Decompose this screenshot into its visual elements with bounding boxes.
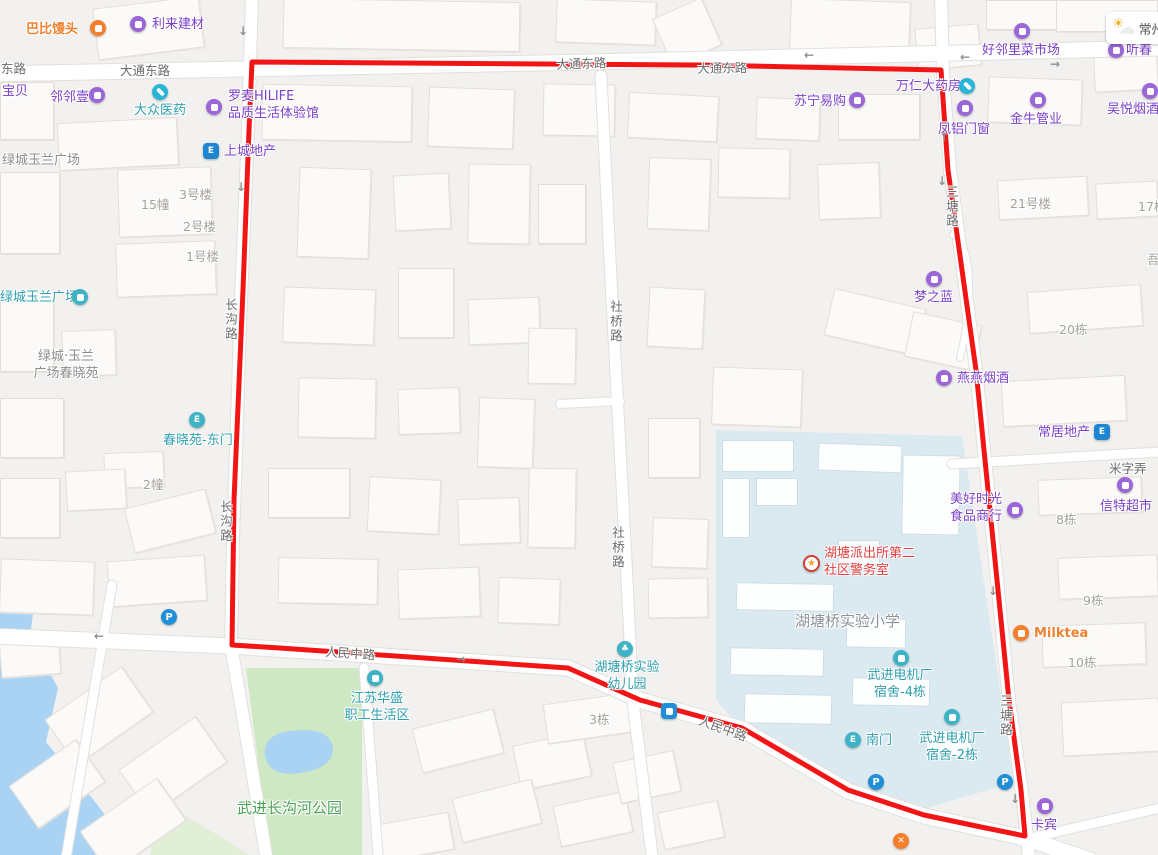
poi-label: 美好时光 食品商行 [950,492,1002,526]
poi-label: 绿城玉兰广场 [0,290,78,307]
poi-label: 上城地产 [224,144,276,161]
shop-icon[interactable] [1007,502,1023,518]
shop-icon[interactable] [206,99,222,115]
road-label: 米字弄 [1109,458,1147,477]
food-icon[interactable] [90,20,106,36]
one-way-arrow-icon: ↓ [236,180,246,194]
labels-layer: 巴比馒头利来建材宝贝邻邻壹大众医药罗麦HILIFE 品质生活体验馆苏宁易购万仁大… [0,0,1158,855]
pill-icon[interactable] [959,78,975,94]
bldg-icon[interactable] [72,289,88,305]
cloud-icon: ☁ [1120,19,1135,37]
shop-icon[interactable] [1030,92,1046,108]
poi-label: 21号楼 [1010,196,1051,212]
shop-icon[interactable] [1108,42,1124,58]
police-icon[interactable]: ★ [803,555,820,572]
shop-icon[interactable] [89,87,105,103]
shop-icon[interactable] [849,92,865,108]
poi-label: 武进电机厂 宿舍-2栋 [916,731,988,765]
poi-label: 卡宾 [1031,818,1057,835]
poi-label: 17栋 [1138,199,1158,215]
road-label: 东路 [1,58,26,77]
map-canvas[interactable]: 巴比馒头利来建材宝贝邻邻壹大众医药罗麦HILIFE 品质生活体验馆苏宁易购万仁大… [0,0,1158,855]
poi-label: 宝贝 [2,84,28,101]
poi-label: 湖塘桥实验 幼儿园 [588,660,666,694]
road-label: 三塘路 [996,694,1015,738]
one-way-arrow-icon: ← [960,50,970,64]
poi-label: 3号楼 [179,187,212,203]
tree-icon[interactable]: ♣ [617,641,633,657]
poi-label: 利来建材 [152,17,204,34]
road-label: 大通东路 [556,52,607,73]
tea-icon[interactable] [1013,625,1029,641]
road-label: 大通东路 [697,57,747,77]
estate-icon[interactable]: E [1094,424,1110,440]
poi-label: 南门 [866,733,892,750]
parking-icon[interactable]: P [868,774,884,790]
poi-label: 1号楼 [186,249,219,265]
poi-label: 邻邻壹 [50,90,89,107]
road-label: 人民中路 [325,641,376,663]
poi-label: Milktea [1034,626,1088,643]
shop-icon[interactable] [957,100,973,116]
poi-label: 2号楼 [183,219,216,235]
road-label: 大通东路 [120,60,170,79]
weather-widget[interactable]: ☀ ☁ 常州 [1106,12,1158,44]
road-label: 人民中路 [697,710,750,745]
poi-label: 15幢 [141,197,169,213]
poi-label: 武进电机厂 宿舍-4栋 [864,668,936,702]
road-label: 长沟路 [221,298,240,342]
poi-label: 春晓苑-东门 [163,433,233,450]
poi-label: 金牛管业 [1010,112,1062,129]
one-way-arrow-icon: ↓ [238,24,248,38]
poi-label: 湖塘派出所第二 社区警务室 [824,546,915,580]
bldg-icon[interactable] [367,670,383,686]
poi-label: 3栋 [589,712,609,728]
one-way-arrow-icon: ↓ [988,584,998,598]
shop-icon[interactable] [1117,477,1133,493]
poi-label: 苏宁易购 [794,94,846,111]
road-label: 三塘路 [942,185,961,229]
poi-label: 巴比馒头 [26,22,78,39]
poi-label: 信特超市 [1100,499,1152,516]
poi-label: 大众医药 [134,103,186,120]
one-way-arrow-icon: ← [94,629,104,643]
poi-label: 听春 [1126,43,1152,60]
pill-icon[interactable] [152,84,168,100]
parking-icon[interactable]: P [161,609,177,625]
poi-label: 20栋 [1059,322,1087,338]
shop-icon[interactable] [1014,23,1030,39]
shop-icon[interactable] [1142,83,1158,99]
poi-label: 10栋 [1068,655,1096,671]
poi-label: 万仁大药房 [896,79,961,96]
bldg-icon[interactable] [893,650,909,666]
poi-label: 好邻里菜市场 [982,43,1060,60]
shop-icon[interactable] [936,370,952,386]
weather-city: 常州 [1139,19,1158,38]
bus-icon[interactable] [661,703,677,719]
one-way-arrow-icon: → [456,652,466,666]
one-way-arrow-icon: ↑ [939,130,949,144]
poi-label: 吾 [1147,252,1158,268]
gate-icon[interactable]: E [845,732,861,748]
poi-label: 武进长沟河公园 [237,799,342,819]
gate-icon[interactable]: E [189,412,205,428]
shop-icon[interactable] [1037,798,1053,814]
bldg-icon[interactable] [944,709,960,725]
poi-label: 9栋 [1083,593,1103,609]
shop-icon[interactable] [130,16,146,32]
poi-label: 吴悦烟酒 [1107,102,1158,119]
poi-label: 绿城玉兰广场 [2,153,80,170]
one-way-arrow-icon: → [1050,57,1060,71]
poi-label: 梦之蓝 [914,290,953,307]
rest-icon[interactable]: ✕ [893,833,909,849]
one-way-arrow-icon: ↓ [1010,792,1020,806]
poi-label: 常居地产 [1038,425,1090,442]
parking-icon[interactable]: P [997,774,1013,790]
estate-icon[interactable]: E [203,143,219,159]
poi-label: 湖塘桥实验小学 [795,612,900,632]
one-way-arrow-icon: ← [804,48,814,62]
poi-label: 江苏华盛 职工生活区 [338,691,416,725]
road-label: 社桥路 [606,300,625,344]
road-label: 社桥路 [608,526,627,570]
shop-icon[interactable] [926,271,942,287]
poi-label: 8栋 [1056,512,1076,528]
poi-label: 罗麦HILIFE 品质生活体验馆 [228,89,319,123]
poi-label: 燕燕烟酒 [957,371,1009,388]
one-way-arrow-icon: ↓ [937,174,947,188]
poi-label: 2幢 [143,477,163,493]
road-label: 长沟路 [216,500,235,544]
poi-label: 绿城·玉兰 广场春晓苑 [18,349,114,383]
